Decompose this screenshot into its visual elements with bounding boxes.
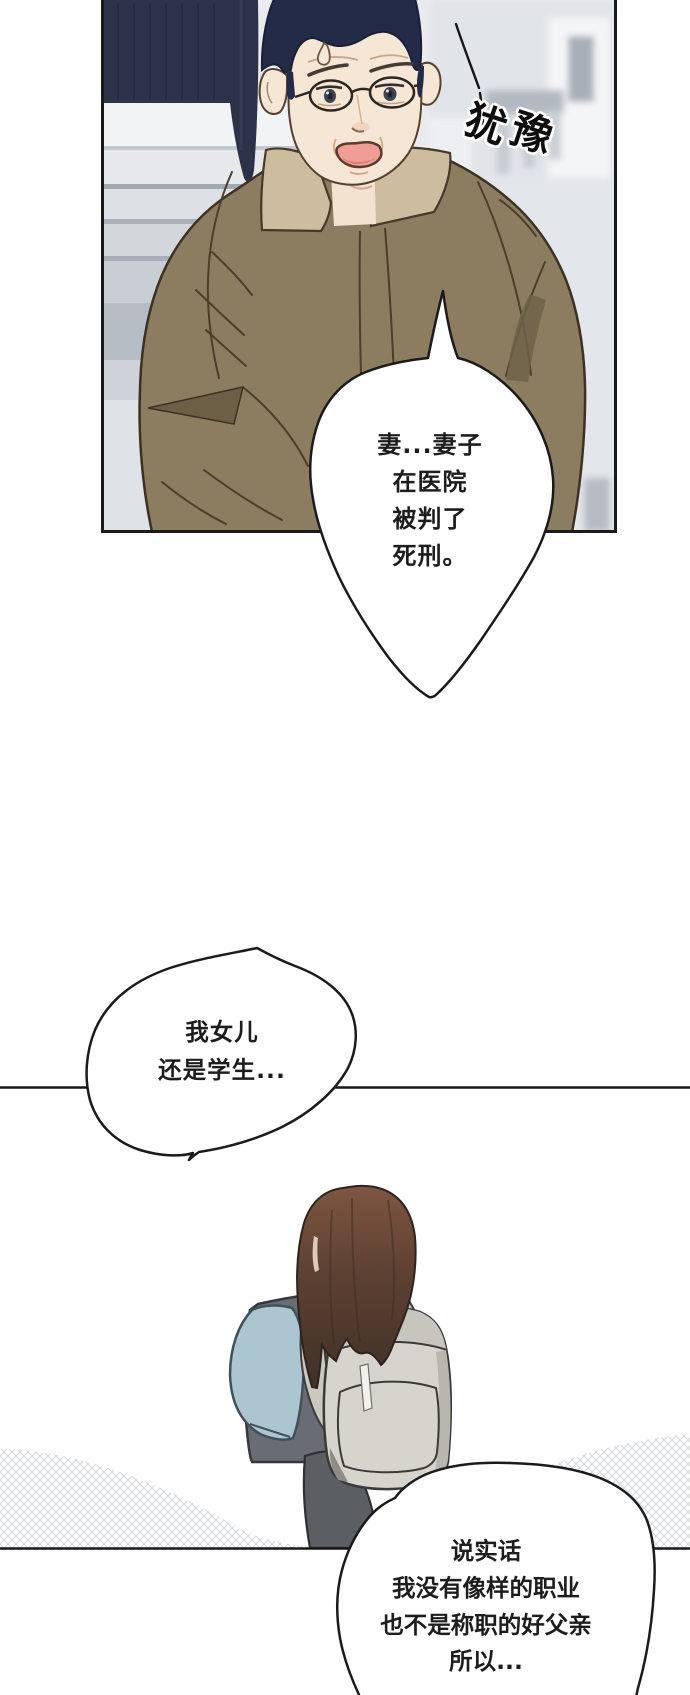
speech-bubble-3 — [337, 1463, 654, 1695]
comic-page: 犹豫 妻...妻子 在医院 被判了 死刑。 我女儿 还是学生... 说实话 我没… — [0, 0, 690, 1695]
girl-left-sleeve — [230, 1306, 304, 1440]
speech-bubble-2 — [87, 948, 356, 1160]
man-mouth — [337, 142, 382, 167]
comic-artwork — [0, 0, 690, 1695]
